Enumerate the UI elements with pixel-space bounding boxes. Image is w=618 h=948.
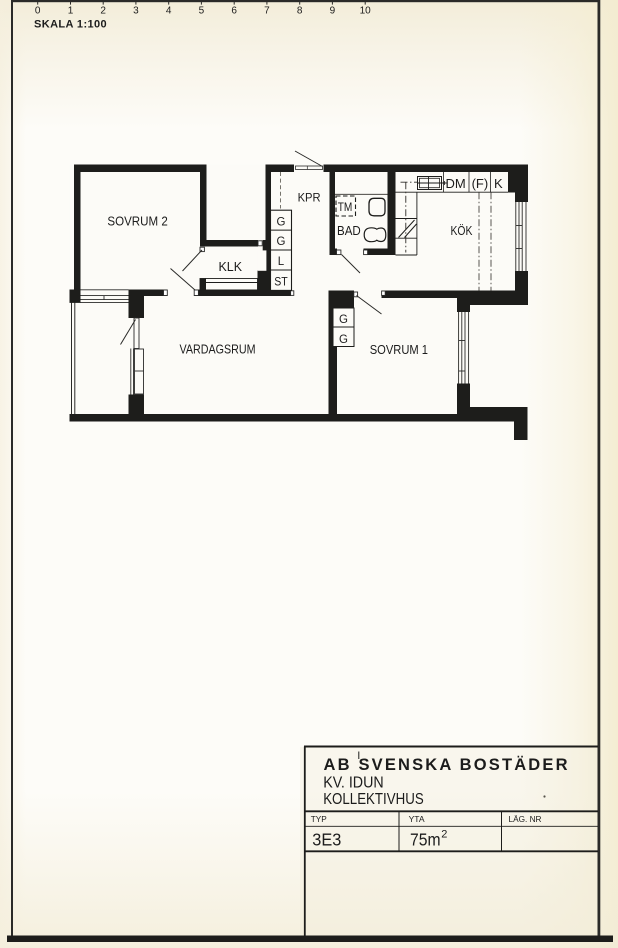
- svg-text:ST: ST: [274, 276, 288, 288]
- svg-text:5: 5: [199, 5, 205, 16]
- svg-text:2: 2: [441, 829, 447, 841]
- svg-text:YTA: YTA: [409, 814, 425, 824]
- svg-text:KLK: KLK: [219, 260, 243, 274]
- svg-text:6: 6: [231, 5, 237, 16]
- svg-text:L: L: [278, 256, 285, 268]
- svg-text:8: 8: [297, 5, 303, 16]
- svg-text:0: 0: [35, 5, 41, 16]
- svg-text:DM: DM: [445, 176, 465, 191]
- svg-text:G: G: [339, 334, 348, 346]
- svg-text:SKALA 1:100: SKALA 1:100: [34, 19, 107, 31]
- svg-text:10: 10: [360, 5, 372, 16]
- svg-text:(F): (F): [472, 176, 489, 191]
- svg-text:2: 2: [100, 5, 106, 16]
- svg-text:KV. IDUN: KV. IDUN: [323, 775, 384, 792]
- svg-text:K: K: [494, 176, 503, 191]
- svg-text:75m: 75m: [410, 829, 441, 849]
- svg-text:LÄG. NR: LÄG. NR: [509, 814, 542, 824]
- svg-text:TYP: TYP: [311, 814, 327, 824]
- svg-text:3E3: 3E3: [312, 829, 341, 849]
- svg-text:KOLLEKTIVHUS: KOLLEKTIVHUS: [323, 791, 424, 808]
- svg-text:G: G: [339, 314, 348, 326]
- svg-text:KPR: KPR: [298, 191, 321, 205]
- svg-text:3: 3: [133, 5, 139, 16]
- svg-text:G: G: [277, 236, 286, 248]
- svg-text:7: 7: [264, 5, 270, 16]
- svg-text:TM: TM: [338, 200, 353, 214]
- svg-text:AB SVENSKA BOSTÄDER: AB SVENSKA BOSTÄDER: [324, 756, 568, 774]
- svg-text:VARDAGSRUM: VARDAGSRUM: [180, 343, 256, 357]
- svg-text:1: 1: [68, 5, 74, 16]
- svg-text:9: 9: [330, 5, 336, 16]
- svg-text:KÖK: KÖK: [451, 224, 473, 238]
- svg-text:BAD: BAD: [337, 224, 361, 238]
- svg-text:SOVRUM 1: SOVRUM 1: [370, 343, 428, 357]
- svg-text:SOVRUM 2: SOVRUM 2: [107, 214, 167, 228]
- svg-text:G: G: [277, 216, 286, 228]
- svg-text:4: 4: [166, 5, 172, 16]
